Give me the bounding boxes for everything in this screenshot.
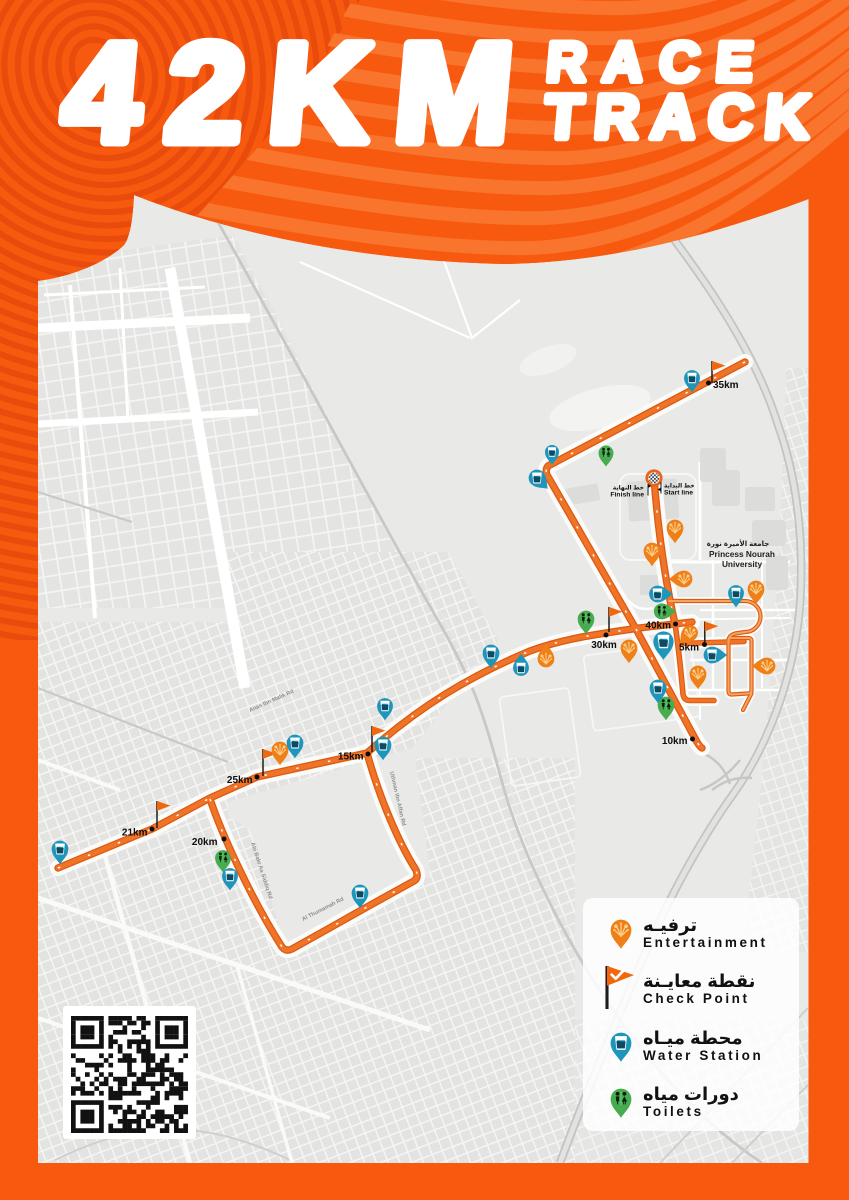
svg-text:Water Station: Water Station [643,1048,763,1063]
svg-text:5km: 5km [679,643,699,654]
svg-text:21km: 21km [122,828,148,839]
svg-text:35km: 35km [713,380,739,391]
svg-text:Start line: Start line [664,490,693,497]
svg-text:20km: 20km [192,837,218,848]
svg-text:دورات مياه: دورات مياه [643,1084,739,1105]
svg-text:Toilets: Toilets [643,1104,704,1119]
svg-text:30km: 30km [591,640,617,651]
svg-text:نقطة معايـنة: نقطة معايـنة [643,971,755,991]
svg-text:خط البداية: خط البداية [664,483,695,490]
svg-text:15km: 15km [338,752,364,763]
svg-text:ترفيـه: ترفيـه [643,915,697,936]
svg-text:40km: 40km [645,621,671,632]
svg-text:محطة ميـاه: محطة ميـاه [643,1028,743,1048]
svg-text:University: University [722,559,763,569]
svg-text:خط النهاية: خط النهاية [613,485,644,492]
svg-text:Entertainment: Entertainment [643,935,768,950]
svg-text:10km: 10km [662,736,688,747]
svg-text:Princess Nourah: Princess Nourah [709,549,775,559]
svg-text:25km: 25km [227,775,253,786]
svg-text:TRACK: TRACK [542,83,825,152]
svg-text:جامعة الأميرة نورة: جامعة الأميرة نورة [707,539,770,548]
svg-text:Check Point: Check Point [643,991,750,1006]
svg-text:42KM: 42KM [57,14,544,171]
svg-text:Finish line: Finish line [610,492,644,499]
